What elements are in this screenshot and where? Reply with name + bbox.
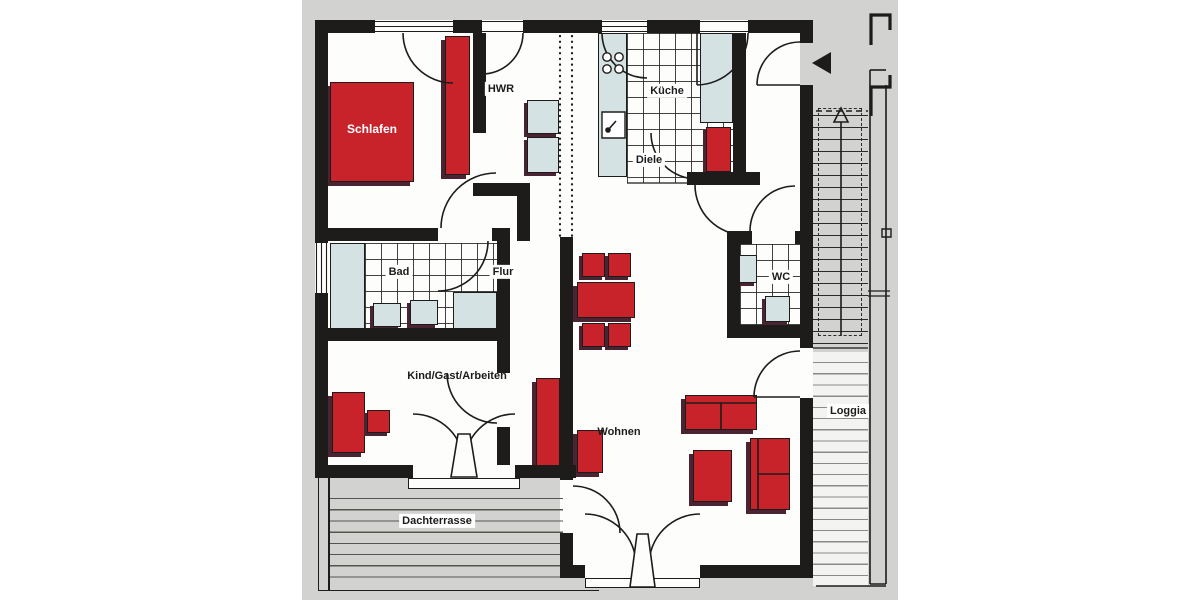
- plan-linework: [0, 0, 1200, 600]
- outline-hook-top: [871, 15, 890, 45]
- sofa-two-seat-lines: [685, 403, 757, 430]
- room-label-diele: Diele: [633, 153, 665, 167]
- door-arc-terrace: [573, 486, 620, 533]
- hob-ring-1: [603, 53, 611, 61]
- glazing-kueche: [602, 22, 647, 32]
- room-label-loggia: Loggia: [827, 404, 869, 418]
- room-label-hwr: HWR: [485, 82, 517, 96]
- door-arc-schlafen: [441, 173, 496, 228]
- door-arc-loggia: [754, 351, 800, 397]
- hob-ring-3: [603, 65, 611, 73]
- door-arc-wohnen-french-left: [585, 514, 636, 565]
- door-arc-entrance: [757, 42, 800, 85]
- roof-line-dotted: [560, 36, 572, 237]
- door-arc-diele: [695, 185, 745, 235]
- door-arc-wc: [750, 186, 795, 231]
- door-arc-schlafen-window: [403, 33, 453, 83]
- outline-hook-mid: [871, 75, 890, 116]
- kind-french-leaves: [451, 434, 477, 477]
- door-arc-bad: [438, 241, 488, 291]
- floor-plan: Schlafen HWR Küche Diele Bad Flur WC Kin…: [0, 0, 1200, 600]
- sofa-single-lines: [758, 438, 790, 510]
- door-arc-wohnen-french-right: [649, 514, 700, 565]
- room-label-bad: Bad: [386, 265, 413, 279]
- room-label-wohnen: Wohnen: [594, 425, 643, 439]
- hob-ring-2: [615, 53, 623, 61]
- wohnen-french-leaves: [630, 534, 655, 587]
- room-label-wc: WC: [769, 270, 793, 284]
- room-label-kueche: Küche: [647, 84, 687, 98]
- glazing-schlafen: [375, 22, 453, 32]
- room-label-flur: Flur: [490, 265, 517, 279]
- glazing-bad: [317, 243, 327, 293]
- hob-ring-4: [615, 65, 623, 73]
- entrance-arrow-icon: [812, 52, 831, 74]
- door-arc-topright: [697, 33, 748, 85]
- outline-bottom: [816, 584, 886, 586]
- door-arc-hwr: [482, 33, 523, 74]
- room-label-kind-gast-arbeiten: Kind/Gast/Arbeiten: [404, 369, 510, 383]
- stairs-up-arrow: [834, 108, 848, 122]
- room-label-dachterrasse: Dachterrasse: [399, 514, 475, 528]
- room-label-schlafen: Schlafen: [344, 122, 400, 138]
